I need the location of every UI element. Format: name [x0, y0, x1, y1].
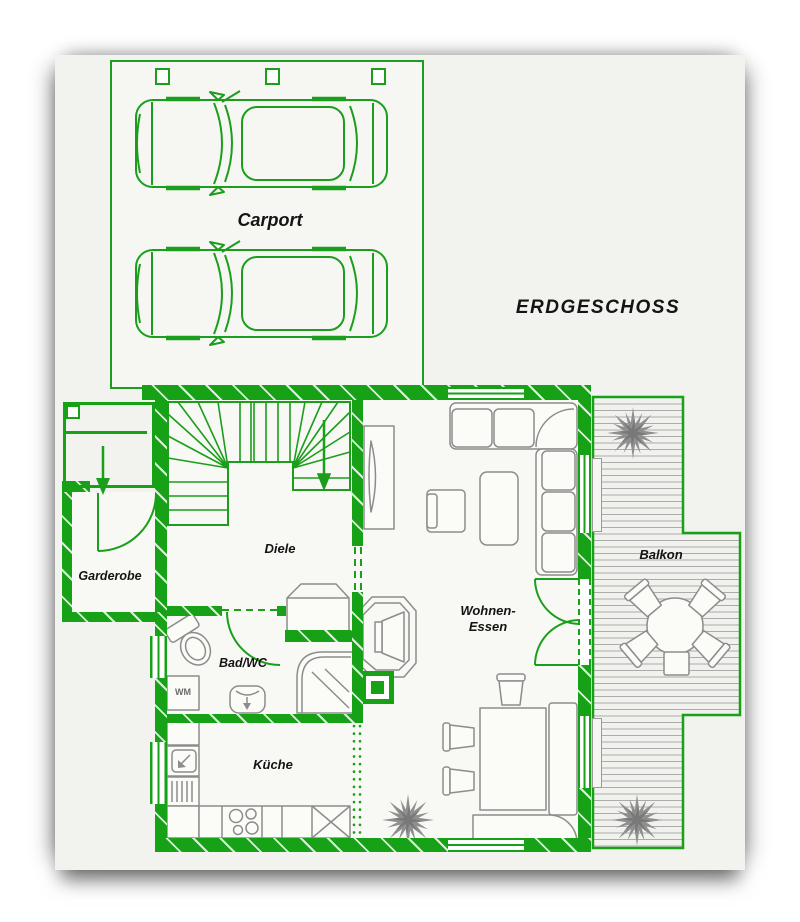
washing-machine-label: WM [167, 687, 199, 698]
dining-chair [443, 767, 474, 795]
armchair [427, 490, 465, 532]
bad-wc-label: Bad/WC [208, 656, 278, 671]
car-icon [136, 91, 387, 195]
dining-chair [497, 674, 525, 705]
wall-exterior-south [155, 838, 448, 852]
coffee-table [480, 472, 518, 545]
window-bad [150, 636, 167, 678]
window-sill [592, 718, 602, 788]
wall-bad-north [285, 630, 352, 642]
wall-kueche-north [167, 714, 363, 723]
floor-title: ERDGESCHOSS [498, 297, 698, 320]
wohnen-essen-label: Wohnen- Essen [448, 603, 528, 634]
wall-bad-north [167, 606, 222, 616]
floorplan-page: Carport ERDGESCHOSS Garderobe Diele Bad/… [0, 0, 800, 922]
diele-label: Diele [250, 541, 310, 557]
porch-post [66, 405, 80, 419]
dining-table [480, 708, 546, 810]
wall-diele-wohnen [352, 400, 363, 546]
wall-garderobe-south [62, 612, 167, 622]
garderobe-door-arc [98, 493, 156, 551]
wall-exterior-east [578, 665, 591, 716]
window-essen-east [578, 716, 591, 788]
wall-bad-north-post [277, 606, 286, 616]
wall-exterior-east [578, 788, 591, 838]
wall-garderobe-west [62, 490, 72, 622]
window-north [448, 387, 524, 400]
kitchen-counter [167, 722, 350, 838]
window-wohnen-east [578, 455, 591, 533]
shower [297, 652, 356, 713]
wall-exterior-east [578, 400, 591, 455]
window-sill [592, 458, 602, 532]
sideboard [364, 426, 394, 529]
staircase [168, 402, 350, 525]
french-door-opening [578, 579, 591, 665]
diele-wohnen-opening [355, 547, 361, 595]
window-south [448, 838, 524, 852]
porch-step [66, 431, 147, 434]
fireplace [361, 671, 394, 704]
wall-exterior-south [524, 838, 591, 852]
car-icon [136, 241, 387, 345]
tv-corner [358, 597, 416, 677]
essen-line: Essen [448, 619, 528, 635]
wohnen-line: Wohnen- [448, 603, 528, 619]
dresser [287, 584, 349, 632]
balkon-label: Balkon [626, 547, 696, 563]
bathroom-sink [230, 686, 265, 713]
window-kueche [150, 742, 167, 804]
wall-bad-east [352, 592, 363, 718]
garderobe-label: Garderobe [70, 569, 150, 584]
french-door [535, 579, 580, 665]
kueche-label: Küche [240, 757, 306, 773]
wall-exterior-east [578, 533, 591, 579]
balcony-chair [664, 652, 689, 675]
carport-label: Carport [215, 210, 325, 232]
dining-chair [443, 723, 474, 751]
kueche-wohnen-divider [354, 726, 360, 836]
